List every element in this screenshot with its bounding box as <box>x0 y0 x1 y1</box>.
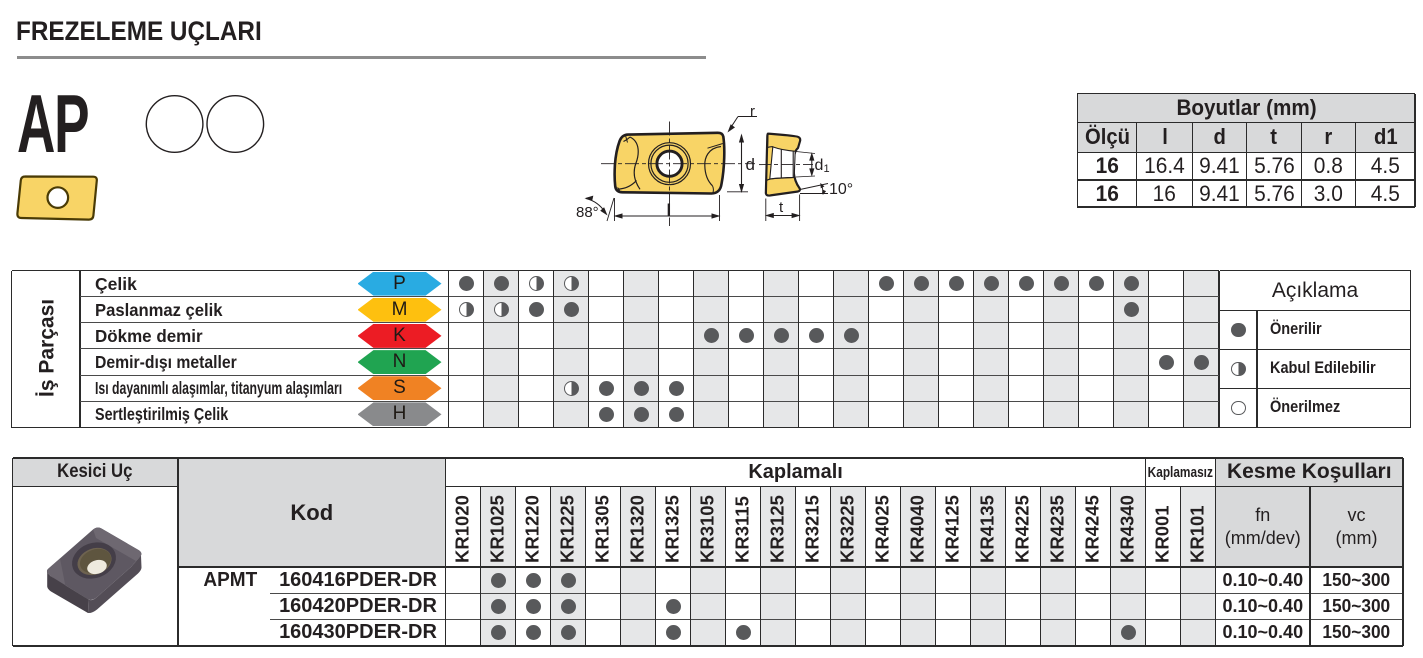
svg-text:KR3215: KR3215 <box>802 495 823 563</box>
svg-text:KR1020: KR1020 <box>452 495 473 563</box>
svg-text:KR1025: KR1025 <box>487 495 508 563</box>
svg-text:KR1220: KR1220 <box>522 495 543 563</box>
svg-text:KR3125: KR3125 <box>767 495 788 563</box>
svg-text:d: d <box>815 157 824 174</box>
svg-text:88°: 88° <box>576 204 599 221</box>
svg-text:KR1320: KR1320 <box>627 495 648 563</box>
svg-text:KR4340: KR4340 <box>1117 495 1138 563</box>
svg-text:İş Parçası: İş Parçası <box>36 299 59 397</box>
svg-text:KR4225: KR4225 <box>1012 495 1033 563</box>
svg-text:t: t <box>779 199 784 216</box>
svg-text:KR001: KR001 <box>1152 505 1173 563</box>
svg-text:KR1325: KR1325 <box>662 495 683 563</box>
svg-text:KR101: KR101 <box>1187 505 1208 563</box>
svg-text:KR3225: KR3225 <box>837 495 858 563</box>
svg-text:1: 1 <box>824 163 830 175</box>
svg-text:10°: 10° <box>829 181 853 198</box>
svg-text:KR4235: KR4235 <box>1047 495 1068 563</box>
svg-text:KR1225: KR1225 <box>557 495 578 563</box>
svg-text:KR1305: KR1305 <box>592 495 613 563</box>
svg-text:KR3115: KR3115 <box>732 496 753 563</box>
svg-text:KR4040: KR4040 <box>907 495 928 563</box>
svg-text:KR4135: KR4135 <box>977 495 998 563</box>
svg-text:r: r <box>750 103 755 120</box>
svg-text:KR3105: KR3105 <box>697 495 718 563</box>
svg-text:KR4025: KR4025 <box>872 495 893 563</box>
svg-text:KR4125: KR4125 <box>942 495 963 563</box>
svg-text:l: l <box>667 201 672 220</box>
svg-text:d: d <box>746 155 755 174</box>
svg-text:KR4245: KR4245 <box>1082 495 1103 563</box>
